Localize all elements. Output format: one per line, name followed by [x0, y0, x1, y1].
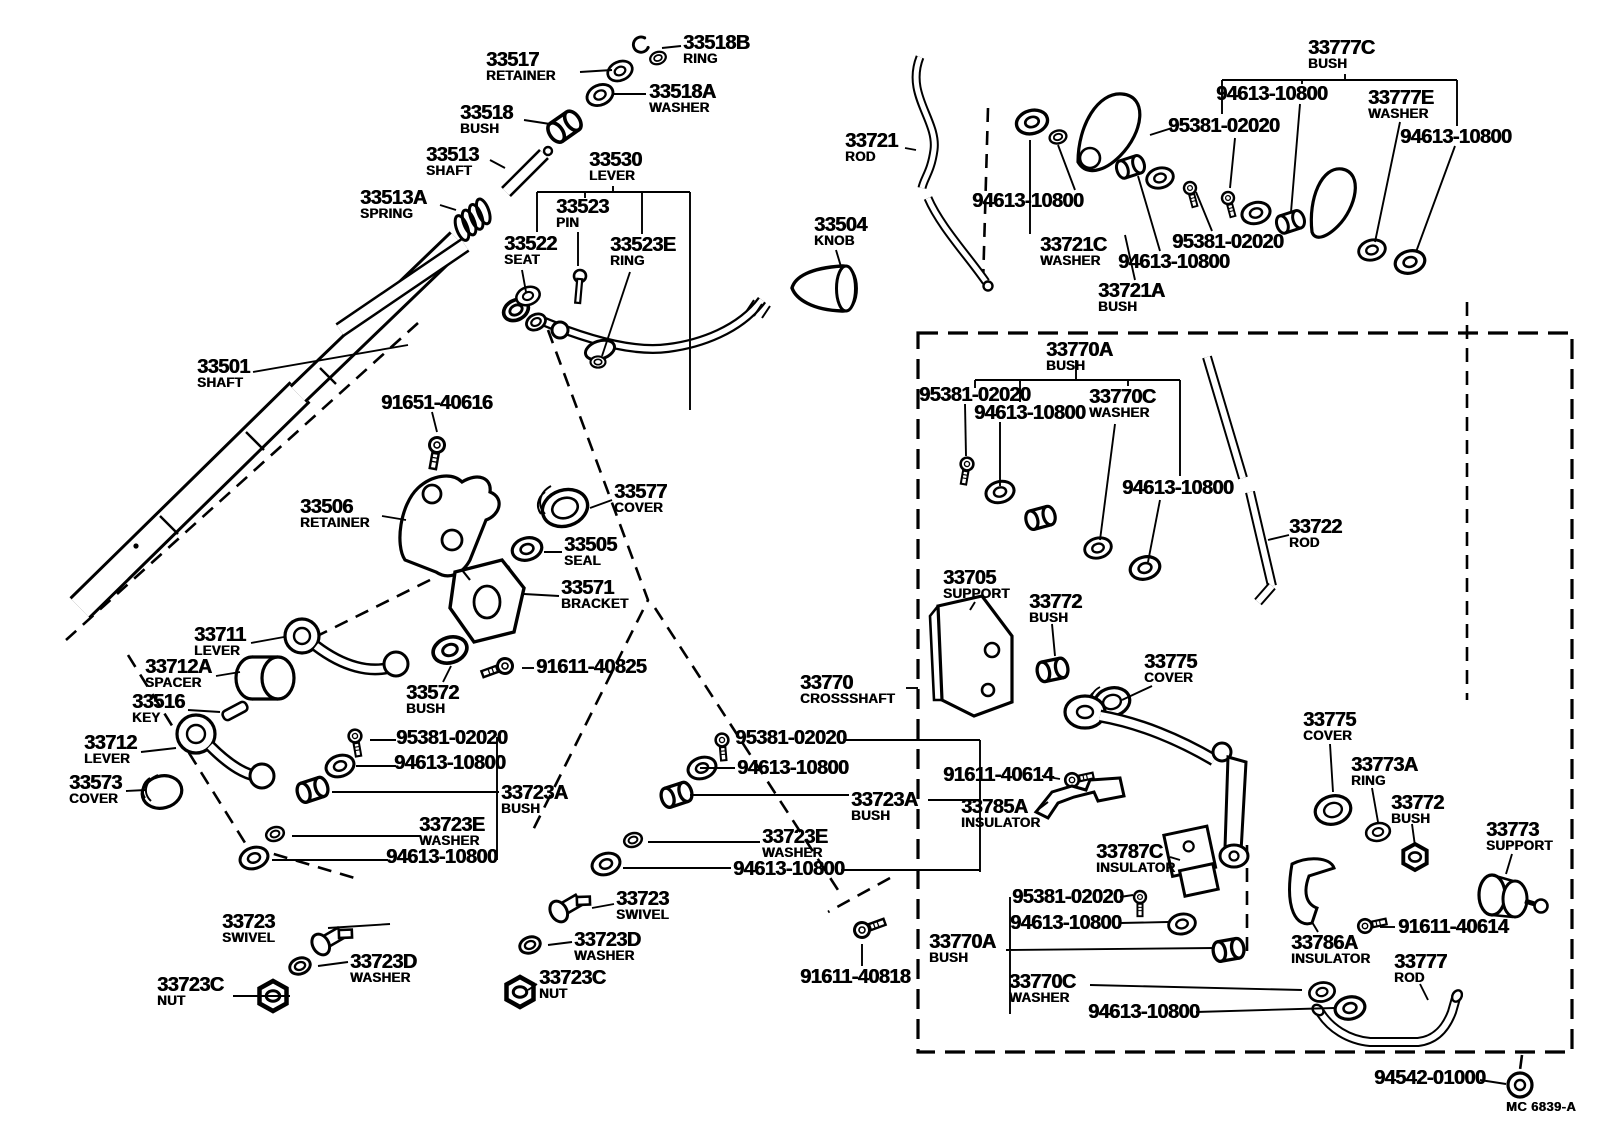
part-label-33787C: 33787CINSULATOR [1096, 843, 1175, 875]
part-name: WASHER [1089, 407, 1155, 420]
part-name: SWIVEL [616, 909, 669, 922]
part-name: INSULATOR [1291, 953, 1370, 966]
part-label-94613-10800: 94613-10800 [394, 754, 505, 773]
part-name: PIN [556, 217, 609, 230]
part-label-33721A: 33721ABUSH [1098, 282, 1164, 314]
part-name: COVER [1144, 672, 1197, 685]
part-name: RING [683, 53, 749, 66]
part-name: RETAINER [486, 70, 556, 83]
part-name: BUSH [1046, 360, 1112, 373]
part-name: SEAL [564, 555, 617, 568]
part-label-33721: 33721ROD [845, 132, 898, 164]
part-name: RING [1351, 775, 1417, 788]
part-label-94613-10800: 94613-10800 [1088, 1003, 1199, 1022]
part-label-33775: 33775COVER [1303, 711, 1356, 743]
part-label-33721C: 33721CWASHER [1040, 236, 1106, 268]
part-label-33501: 33501SHAFT [197, 358, 250, 390]
part-label-94613-10800: 94613-10800 [1118, 253, 1229, 272]
part-name: NUT [539, 988, 605, 1001]
part-label-33577: 33577COVER [614, 483, 667, 515]
part-label-33504: 33504KNOB [814, 216, 867, 248]
part-label-33723A: 33723ABUSH [501, 784, 567, 816]
part-label-33723: 33723SWIVEL [616, 890, 669, 922]
part-number: 94542-01000 [1374, 1069, 1485, 1088]
part-name: RETAINER [300, 517, 370, 530]
part-name: ROD [1394, 972, 1447, 985]
part-label-33513A: 33513ASPRING [360, 189, 426, 221]
part-label-33571: 33571BRACKET [561, 579, 628, 611]
part-label-33770C: 33770CWASHER [1089, 388, 1155, 420]
part-name: BUSH [1391, 813, 1444, 826]
part-name: SPACER [145, 677, 211, 690]
part-label-33723: 33723SWIVEL [222, 913, 275, 945]
part-name: BUSH [1098, 301, 1164, 314]
part-name: BUSH [406, 703, 459, 716]
part-number: 91611-40818 [800, 968, 910, 987]
part-label-33723D: 33723DWASHER [350, 953, 416, 985]
part-label-33777C: 33777CBUSH [1308, 39, 1374, 71]
part-name: BUSH [501, 803, 567, 816]
part-label-33777: 33777ROD [1394, 953, 1447, 985]
part-label-33772: 33772BUSH [1391, 794, 1444, 826]
part-label-94613-10800: 94613-10800 [1122, 479, 1233, 498]
part-label-94613-10800: 94613-10800 [733, 860, 844, 879]
part-label-33773A: 33773ARING [1351, 756, 1417, 788]
part-label-95381-02020: 95381-02020 [735, 729, 846, 748]
part-name: LEVER [589, 170, 642, 183]
part-label-33518A: 33518AWASHER [649, 83, 715, 115]
part-number: 95381-02020 [735, 729, 846, 748]
part-name: RING [610, 255, 675, 268]
part-name: SEAT [504, 254, 557, 267]
part-label-33513: 33513SHAFT [426, 146, 479, 178]
part-label-94542-01000: 94542-01000 [1374, 1069, 1485, 1088]
part-label-33723A: 33723ABUSH [851, 791, 917, 823]
part-label-33777E: 33777EWASHER [1368, 89, 1433, 121]
part-name: ROD [1289, 537, 1342, 550]
part-label-95381-02020: 95381-02020 [396, 729, 507, 748]
part-name: LEVER [84, 753, 137, 766]
part-name: WASHER [350, 972, 416, 985]
part-name: BUSH [1308, 58, 1374, 71]
part-number: 95381-02020 [1012, 888, 1123, 907]
part-labels-layer: 33518BRING33517RETAINER33518AWASHER33518… [0, 0, 1608, 1130]
part-number: 91611-40614 [943, 766, 1053, 785]
part-label-33517: 33517RETAINER [486, 51, 556, 83]
part-label-33705: 33705SUPPORT [943, 569, 1010, 601]
part-name: COVER [69, 793, 122, 806]
part-label-33523: 33523PIN [556, 198, 609, 230]
part-name: BUSH [460, 123, 513, 136]
part-name: BRACKET [561, 598, 628, 611]
parts-diagram: 33518BRING33517RETAINER33518AWASHER33518… [0, 0, 1608, 1130]
drawing-code: MC 6839-A [1506, 1099, 1576, 1114]
part-label-94613-10800: 94613-10800 [1216, 85, 1327, 104]
part-label-94613-10800: 94613-10800 [1010, 914, 1121, 933]
part-label-33770C: 33770CWASHER [1009, 973, 1075, 1005]
part-name: SHAFT [426, 165, 479, 178]
part-name: SUPPORT [1486, 840, 1553, 853]
part-name: INSULATOR [961, 817, 1040, 830]
part-name: BUSH [851, 810, 917, 823]
part-label-33770: 33770CROSSSHAFT [800, 674, 895, 706]
part-label-95381-02020: 95381-02020 [1172, 233, 1283, 252]
part-name: KNOB [814, 235, 867, 248]
part-name: BUSH [1029, 612, 1082, 625]
part-number: 91651-40616 [381, 394, 492, 413]
part-label-33711: 33711LEVER [194, 626, 246, 658]
part-number: 91611-40825 [536, 658, 646, 677]
part-name: NUT [157, 995, 223, 1008]
part-name: COVER [614, 502, 667, 515]
part-name: WASHER [649, 102, 715, 115]
part-label-95381-02020: 95381-02020 [1012, 888, 1123, 907]
part-label-33786A: 33786AINSULATOR [1291, 934, 1370, 966]
part-label-33506: 33506RETAINER [300, 498, 370, 530]
part-label-33723E: 33723EWASHER [762, 828, 827, 860]
part-label-33523E: 33523ERING [610, 236, 675, 268]
part-label-33772: 33772BUSH [1029, 593, 1082, 625]
part-number: 94613-10800 [394, 754, 505, 773]
part-label-91611-40825: 91611-40825 [536, 658, 646, 677]
part-label-91651-40616: 91651-40616 [381, 394, 492, 413]
part-name: SWIVEL [222, 932, 275, 945]
part-label-33522: 33522SEAT [504, 235, 557, 267]
part-number: 91611-40614 [1398, 918, 1508, 937]
part-name: BUSH [929, 952, 995, 965]
part-label-33785A: 33785AINSULATOR [961, 798, 1040, 830]
part-number: 95381-02020 [396, 729, 507, 748]
part-name: WASHER [1009, 992, 1075, 1005]
part-number: 95381-02020 [1172, 233, 1283, 252]
part-label-33712: 33712LEVER [84, 734, 137, 766]
part-label-91611-40614: 91611-40614 [1398, 918, 1508, 937]
part-label-94613-10800: 94613-10800 [974, 404, 1085, 423]
part-label-33770A: 33770ABUSH [1046, 341, 1112, 373]
part-label-33572: 33572BUSH [406, 684, 459, 716]
part-name: CROSSSHAFT [800, 693, 895, 706]
part-name: SHAFT [197, 377, 250, 390]
part-label-91611-40614: 91611-40614 [943, 766, 1053, 785]
part-label-33505: 33505SEAL [564, 536, 617, 568]
part-number: 94613-10800 [1400, 128, 1511, 147]
part-label-33770A: 33770ABUSH [929, 933, 995, 965]
part-label-33723C: 33723CNUT [539, 969, 605, 1001]
part-name: ROD [845, 151, 898, 164]
part-label-33530: 33530LEVER [589, 151, 642, 183]
part-label-94613-10800: 94613-10800 [1400, 128, 1511, 147]
part-name: WASHER [1040, 255, 1106, 268]
part-number: 94613-10800 [974, 404, 1085, 423]
part-number: 94613-10800 [1088, 1003, 1199, 1022]
part-number: 94613-10800 [1216, 85, 1327, 104]
part-label-33518: 33518BUSH [460, 104, 513, 136]
part-label-94613-10800: 94613-10800 [386, 848, 497, 867]
part-label-33518B: 33518BRING [683, 34, 749, 66]
part-label-33723E: 33723EWASHER [419, 816, 484, 848]
part-name: COVER [1303, 730, 1356, 743]
part-number: 94613-10800 [737, 759, 848, 778]
part-label-33722: 33722ROD [1289, 518, 1342, 550]
part-label-33723D: 33723DWASHER [574, 931, 640, 963]
part-name: WASHER [1368, 108, 1433, 121]
part-label-91611-40818: 91611-40818 [800, 968, 910, 987]
part-label-94613-10800: 94613-10800 [737, 759, 848, 778]
part-label-33573: 33573COVER [69, 774, 122, 806]
part-number: 94613-10800 [1010, 914, 1121, 933]
part-number: 95381-02020 [1168, 117, 1279, 136]
part-label-94613-10800: 94613-10800 [972, 192, 1083, 211]
part-number: 94613-10800 [733, 860, 844, 879]
part-number: 94613-10800 [386, 848, 497, 867]
part-name: SPRING [360, 208, 426, 221]
part-name: KEY [132, 712, 185, 725]
part-name: WASHER [574, 950, 640, 963]
part-label-33775: 33775COVER [1144, 653, 1197, 685]
part-name: INSULATOR [1096, 862, 1175, 875]
part-label-33516: 33516KEY [132, 693, 185, 725]
part-label-33773: 33773SUPPORT [1486, 821, 1553, 853]
part-label-33712A: 33712ASPACER [145, 658, 211, 690]
part-number: 94613-10800 [1118, 253, 1229, 272]
part-label-33723C: 33723CNUT [157, 976, 223, 1008]
part-number: 94613-10800 [972, 192, 1083, 211]
part-name: SUPPORT [943, 588, 1010, 601]
part-number: 94613-10800 [1122, 479, 1233, 498]
part-label-95381-02020: 95381-02020 [1168, 117, 1279, 136]
